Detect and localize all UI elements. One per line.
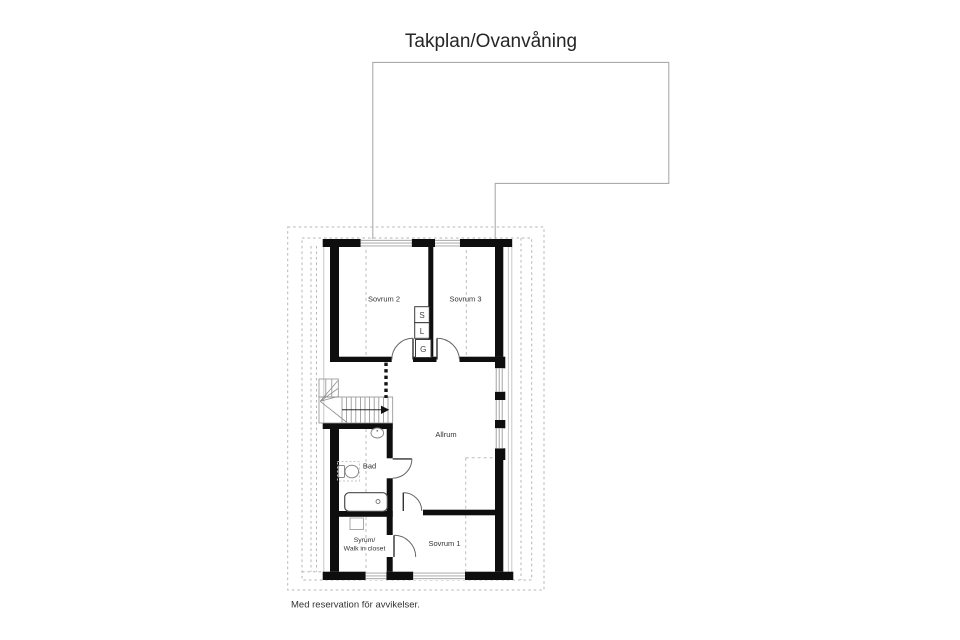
closet-label-g: G — [420, 345, 426, 354]
door-walkincloset — [394, 535, 416, 557]
wall-segment — [323, 423, 393, 429]
door-sovrum3 — [437, 338, 460, 359]
wall-segment — [330, 423, 339, 572]
stair-upper-flight — [319, 379, 338, 397]
wall-segment — [495, 460, 503, 572]
floorplan-page: Takplan/Ovanvåning — [0, 0, 960, 640]
wall-segment — [330, 247, 339, 362]
closet-label-l: L — [420, 327, 425, 336]
room-label-syrum-line1: Syrum/ — [354, 537, 376, 544]
wall-segment — [386, 572, 413, 580]
wall-segment — [387, 557, 393, 572]
window — [366, 572, 387, 580]
door-sovrum1 — [403, 493, 421, 511]
wall-segment — [423, 510, 495, 516]
window — [495, 428, 503, 448]
wall-segment — [412, 239, 435, 247]
wall-segment — [465, 572, 513, 580]
wall-segment — [330, 357, 392, 362]
window — [435, 239, 460, 247]
wall-segment — [323, 572, 366, 580]
room-label-bad: Bad — [363, 462, 376, 471]
staircase — [319, 363, 393, 423]
wardrobe-boxes: S L G — [415, 307, 431, 358]
window — [413, 572, 465, 580]
sink-icon — [371, 428, 384, 438]
sink-faucet-dot — [376, 430, 378, 432]
wall-segment — [495, 247, 503, 357]
wall-pier — [495, 392, 505, 400]
dashed-guides — [288, 227, 544, 590]
wall-pier — [495, 448, 505, 460]
closet-label-s: S — [419, 311, 424, 320]
bathtub-icon — [345, 493, 388, 512]
room-label-sovrum1: Sovrum 1 — [428, 539, 460, 548]
guide-rect-outer — [288, 227, 544, 590]
room-label-syrum-line2: Walk in closet — [344, 546, 386, 553]
wall-segment — [460, 239, 512, 247]
floorplan-svg: Takplan/Ovanvåning — [0, 0, 960, 640]
cabinet-icon — [350, 518, 364, 530]
wall-segment — [460, 357, 504, 362]
door-bad — [393, 459, 412, 478]
toilet-icon — [339, 466, 345, 478]
roof-outline — [373, 62, 669, 239]
door-sovrum2 — [392, 338, 413, 359]
wall-pier — [495, 420, 505, 428]
room-label-allrum: Allrum — [435, 430, 456, 439]
toilet-bowl-icon — [345, 465, 359, 478]
wall-segment — [387, 423, 393, 458]
room-label-sovrum2: Sovrum 2 — [368, 295, 400, 304]
doors — [392, 338, 460, 557]
page-title: Takplan/Ovanvåning — [405, 31, 577, 52]
window — [495, 368, 503, 391]
wall-segment — [323, 239, 361, 247]
window — [495, 400, 503, 420]
disclaimer-text: Med reservation för avvikelser. — [291, 600, 420, 611]
window — [361, 239, 412, 247]
room-label-sovrum3: Sovrum 3 — [449, 295, 481, 304]
